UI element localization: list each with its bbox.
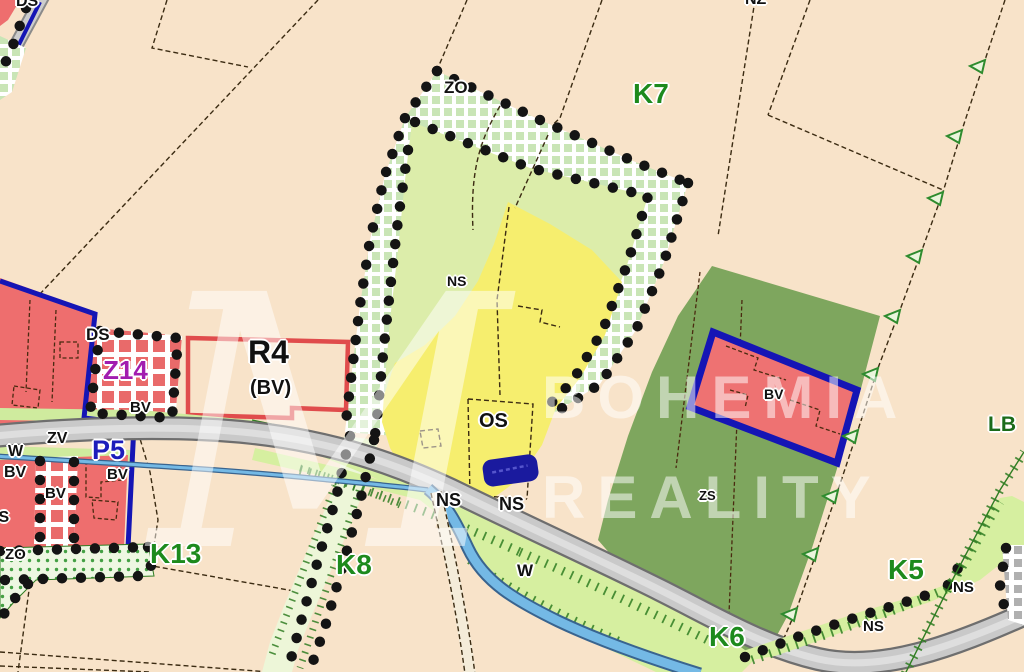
zone-label-zs: ZS: [699, 489, 716, 502]
zone-label-zo-sw: ZO: [5, 547, 26, 562]
zone-label-bv-w1: BV: [4, 465, 26, 481]
zone-label-k6: K6: [709, 623, 745, 651]
zone-label-bv-z14: BV: [130, 400, 151, 415]
zone-label-k5: K5: [888, 556, 924, 584]
zone-label-k8: K8: [336, 551, 372, 579]
zone-label-ds-z14: DS: [86, 326, 110, 343]
zone-label-z14: Z14: [103, 357, 148, 383]
zone-label-ns-road2: NS: [499, 495, 524, 513]
zone-label-bv-w3: BV: [45, 486, 66, 501]
zone-label-r4: R4: [248, 336, 289, 368]
map-graphics: [0, 0, 1024, 672]
zone-label-os-main: OS: [479, 411, 508, 431]
zone-label-os-edge: OS: [0, 510, 9, 526]
zone-label-lb: LB: [988, 414, 1016, 435]
zone-label-ds-top: DS: [16, 0, 38, 10]
zone-label-ns-area: NS: [447, 274, 466, 288]
zone-label-zo-top: ZO: [444, 79, 468, 96]
zone-label-ns-se2: NS: [863, 619, 884, 634]
zone-label-bv-w2: BV: [107, 467, 128, 482]
zone-label-ns-road1: NS: [436, 491, 461, 509]
zone-label-k7: K7: [633, 80, 669, 108]
zone-label-k13: K13: [150, 540, 201, 568]
zone-label-zv: ZV: [47, 431, 67, 447]
zone-label-w-stream: W: [517, 562, 533, 579]
zone-label-w-west: W: [8, 444, 23, 460]
zone-label-bv-east: BV: [764, 387, 783, 401]
zone-label-p5: P5: [92, 437, 125, 464]
zoning-map: M BOHEMIA REALITY DS NZ ZO K7 NS DS Z14 …: [0, 0, 1024, 672]
zone-label-ns-se1: NS: [953, 580, 974, 595]
zone-label-r4-sub: (BV): [250, 378, 291, 398]
zone-label-nz: NZ: [745, 0, 766, 8]
